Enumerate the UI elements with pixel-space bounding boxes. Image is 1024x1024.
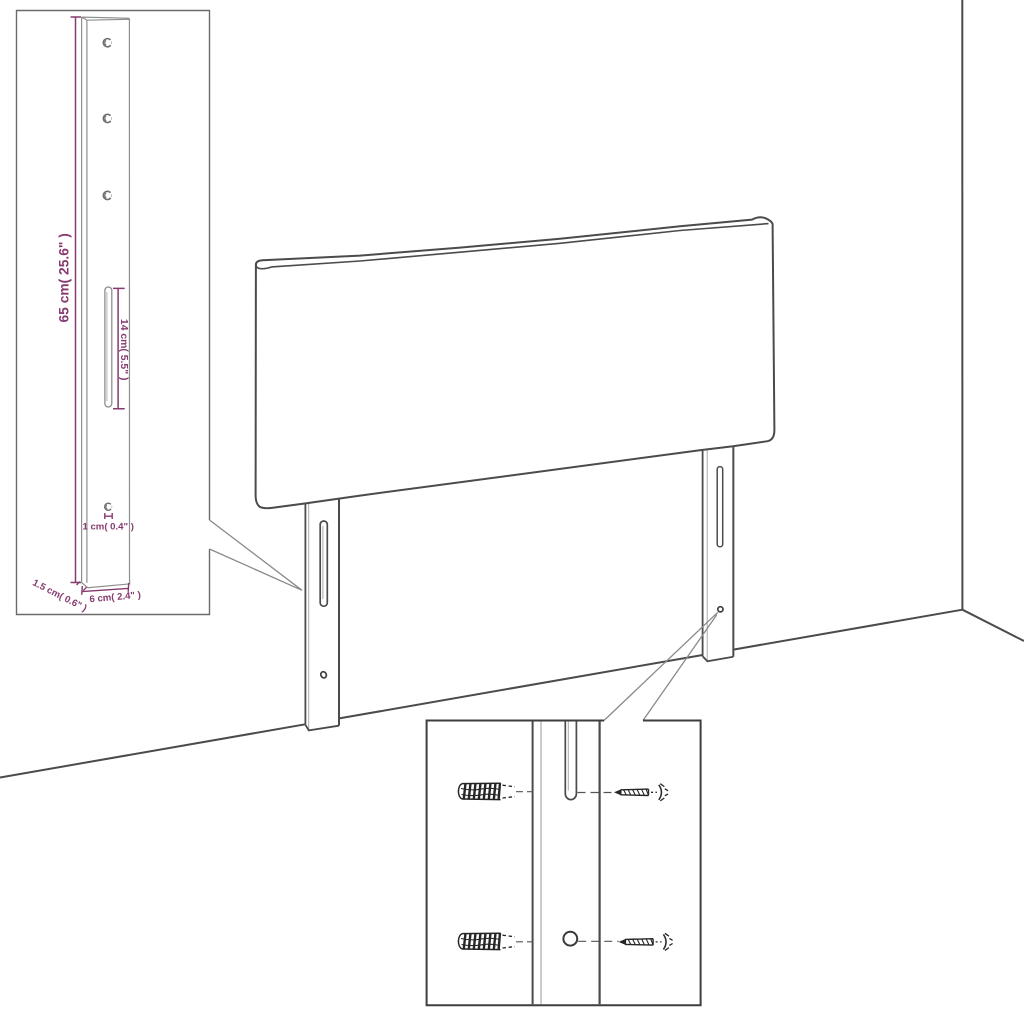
svg-text:6 cm( 2.4" ): 6 cm( 2.4" ) <box>89 590 141 605</box>
svg-text:65 cm( 25.6" ): 65 cm( 25.6" ) <box>56 233 71 322</box>
svg-text:1 cm( 0.4" ): 1 cm( 0.4" ) <box>82 521 133 532</box>
svg-text:14 cm( 5.5" ): 14 cm( 5.5" ) <box>118 319 129 381</box>
